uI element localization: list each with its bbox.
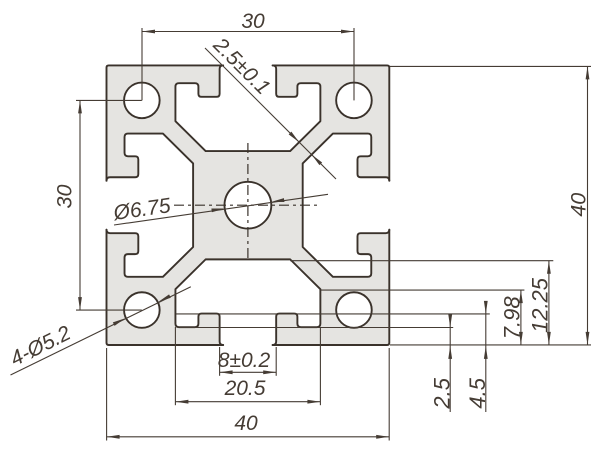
svg-text:12.25: 12.25 <box>528 277 553 333</box>
svg-text:30: 30 <box>53 185 77 209</box>
svg-text:20.5: 20.5 <box>224 377 266 400</box>
svg-text:8±0.2: 8±0.2 <box>218 349 271 372</box>
svg-text:40: 40 <box>234 412 258 435</box>
svg-text:2.5: 2.5 <box>430 377 455 409</box>
svg-text:7.98: 7.98 <box>500 296 525 340</box>
svg-text:40: 40 <box>567 193 591 217</box>
svg-text:30: 30 <box>241 10 265 33</box>
svg-text:Ø6.75: Ø6.75 <box>111 194 172 225</box>
svg-text:4-Ø5.2: 4-Ø5.2 <box>7 321 75 370</box>
svg-text:4.5: 4.5 <box>465 377 490 408</box>
